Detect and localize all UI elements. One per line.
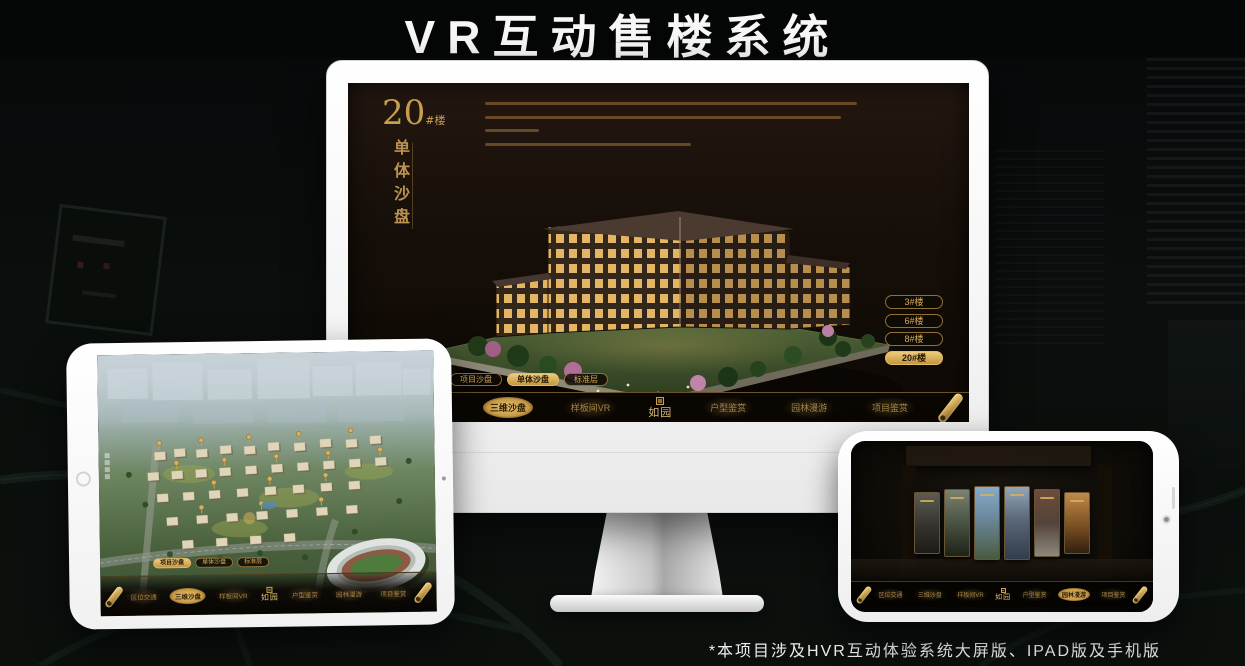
gallery-card[interactable] bbox=[914, 492, 940, 554]
sandtable-subtabs: 项目沙盘 单体沙盘 标准层 bbox=[450, 373, 608, 386]
text-line bbox=[485, 129, 539, 132]
nav-item-3d-sandtable[interactable]: 三维沙盘 bbox=[170, 587, 206, 604]
nav-item-unit-plans[interactable]: 户型鉴赏 bbox=[287, 586, 323, 603]
side-button bbox=[1172, 487, 1175, 509]
background-river bbox=[1168, 320, 1245, 470]
device-tablet: 项目沙盘 单体沙盘 标准层 区位交通 三维沙盘 样板间VR 如园 户型鉴赏 园林… bbox=[66, 338, 455, 629]
text-line bbox=[485, 116, 841, 119]
scroll-icon[interactable] bbox=[413, 581, 433, 604]
scene-gallery bbox=[911, 485, 1093, 561]
camera-icon bbox=[1164, 517, 1169, 522]
brand-logo: 如园 bbox=[261, 587, 279, 602]
nav-item-showroom-vr[interactable]: 样板间VR bbox=[214, 587, 253, 604]
nav-item-project-gallery[interactable]: 项目鉴赏 bbox=[865, 397, 915, 418]
gallery-card[interactable] bbox=[1034, 489, 1060, 557]
nav-item-3d-sandtable[interactable]: 三维沙盘 bbox=[483, 397, 533, 418]
brand-logo-text: 如园 bbox=[261, 594, 279, 602]
seal-icon bbox=[267, 587, 273, 593]
main-navbar: 区位交通 三维沙盘 样板间VR 如园 户型鉴赏 园林漫游 项目鉴赏 bbox=[100, 572, 437, 617]
gallery-card[interactable] bbox=[1004, 486, 1030, 560]
building-render bbox=[398, 141, 918, 411]
brand-logo: 如园 bbox=[648, 397, 672, 418]
scroll-icon[interactable] bbox=[855, 585, 872, 604]
sandtable-subtabs: 项目沙盘 单体沙盘 标准层 bbox=[153, 557, 269, 569]
nav-item-location-traffic[interactable]: 区位交通 bbox=[874, 588, 906, 601]
floor-button-3[interactable]: 3#楼 bbox=[885, 295, 943, 309]
seal-icon bbox=[656, 397, 664, 405]
subtab-single-sandtable[interactable]: 单体沙盘 bbox=[507, 373, 559, 386]
scroll-icon[interactable] bbox=[104, 585, 124, 608]
text-line bbox=[485, 102, 857, 105]
courtyard-beam bbox=[906, 446, 1091, 466]
tablet-screen: 项目沙盘 单体沙盘 标准层 区位交通 三维沙盘 样板间VR 如园 户型鉴赏 园林… bbox=[97, 351, 437, 617]
main-navbar: 区位交通 三维沙盘 样板间VR 如园 户型鉴赏 园林漫游 项目鉴赏 bbox=[851, 581, 1153, 607]
background-plaque bbox=[45, 204, 167, 336]
nav-item-3d-sandtable[interactable]: 三维沙盘 bbox=[914, 588, 946, 601]
section-headline: 20#楼 bbox=[382, 93, 445, 133]
subtab-standard-floor[interactable]: 标准层 bbox=[237, 557, 269, 567]
brand-logo: 如园 bbox=[995, 588, 1011, 601]
subtab-project-sandtable[interactable]: 项目沙盘 bbox=[450, 373, 502, 386]
background-building-silhouette bbox=[995, 150, 1105, 350]
device-phone: 区位交通 三维沙盘 样板间VR 如园 户型鉴赏 园林漫游 项目鉴赏 bbox=[838, 431, 1179, 622]
page-title: VR互动售楼系统 bbox=[0, 1, 1245, 67]
nav-item-showroom-vr[interactable]: 样板间VR bbox=[953, 588, 987, 601]
nav-item-unit-plans[interactable]: 户型鉴赏 bbox=[703, 397, 753, 418]
poster-root: VR互动售楼系统 20#楼 单体沙盘 bbox=[0, 0, 1245, 666]
brand-logo-text: 如园 bbox=[995, 594, 1011, 601]
nav-item-garden-roam[interactable]: 园林漫游 bbox=[1058, 588, 1090, 601]
subtab-project-sandtable[interactable]: 项目沙盘 bbox=[153, 558, 191, 569]
nav-item-garden-roam[interactable]: 园林漫游 bbox=[331, 585, 367, 602]
courtyard-floor bbox=[851, 559, 1153, 581]
subtab-standard-floor[interactable]: 标准层 bbox=[564, 373, 608, 386]
gallery-card[interactable] bbox=[944, 489, 970, 557]
nav-item-garden-roam[interactable]: 园林漫游 bbox=[784, 397, 834, 418]
footnote: *本项目涉及HVR互动体验系统大屏版、IPAD版及手机版 bbox=[709, 637, 1161, 661]
headline-number: 20 bbox=[382, 93, 425, 133]
background-building-silhouette bbox=[1147, 58, 1245, 310]
brand-logo-text: 如园 bbox=[648, 407, 672, 418]
subtab-single-sandtable[interactable]: 单体沙盘 bbox=[195, 557, 233, 568]
camera-icon bbox=[442, 476, 446, 480]
scroll-icon[interactable] bbox=[936, 391, 964, 422]
seal-icon bbox=[1001, 588, 1006, 593]
nav-item-project-gallery[interactable]: 项目鉴赏 bbox=[1097, 588, 1129, 601]
floor-button-20[interactable]: 20#楼 bbox=[885, 351, 943, 365]
gallery-card[interactable] bbox=[1064, 492, 1090, 554]
gallery-card[interactable] bbox=[974, 486, 1000, 560]
nav-item-unit-plans[interactable]: 户型鉴赏 bbox=[1019, 588, 1051, 601]
phone-screen: 区位交通 三维沙盘 样板间VR 如园 户型鉴赏 园林漫游 项目鉴赏 bbox=[851, 441, 1153, 612]
scroll-icon[interactable] bbox=[1131, 585, 1148, 604]
monitor-stand-neck bbox=[591, 512, 723, 598]
headline-suffix: #楼 bbox=[425, 114, 445, 127]
floor-selector: 3#楼 6#楼 8#楼 20#楼 bbox=[885, 295, 943, 365]
road-label-badges bbox=[105, 453, 110, 479]
floor-button-8[interactable]: 8#楼 bbox=[885, 332, 943, 346]
home-button-icon[interactable] bbox=[76, 471, 91, 486]
monitor-stand-base bbox=[550, 595, 764, 612]
nav-item-project-gallery[interactable]: 项目鉴赏 bbox=[375, 584, 411, 601]
nav-item-location-traffic[interactable]: 区位交通 bbox=[126, 588, 162, 605]
floor-button-6[interactable]: 6#楼 bbox=[885, 314, 943, 328]
nav-item-showroom-vr[interactable]: 样板间VR bbox=[564, 397, 618, 418]
